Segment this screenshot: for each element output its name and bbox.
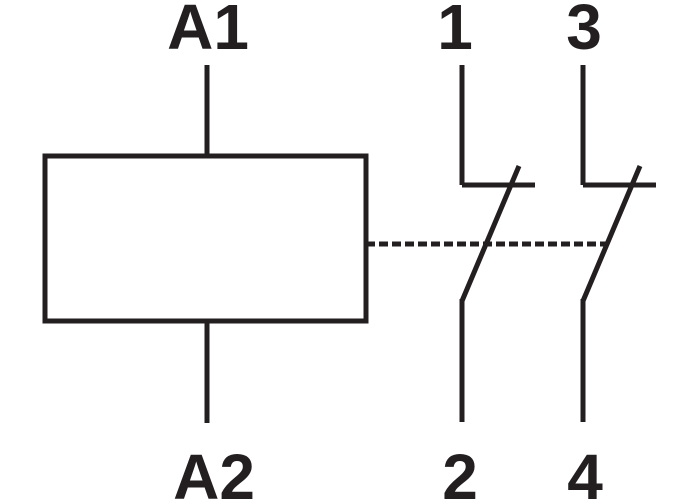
terminal-label-4: 4 [567, 441, 603, 500]
contactor-schematic: A1 1 3 A2 2 4 [0, 0, 700, 500]
terminal-label-3: 3 [566, 0, 602, 63]
terminal-labels: A1 1 3 A2 2 4 [167, 0, 603, 500]
schematic-lines [45, 65, 656, 423]
schematic-canvas: A1 1 3 A2 2 4 [0, 0, 700, 500]
coil-box [45, 156, 366, 321]
terminal-label-2: 2 [442, 441, 478, 500]
terminal-label-a1: A1 [167, 0, 249, 63]
terminal-label-a2: A2 [173, 441, 255, 500]
terminal-label-1: 1 [437, 0, 473, 63]
